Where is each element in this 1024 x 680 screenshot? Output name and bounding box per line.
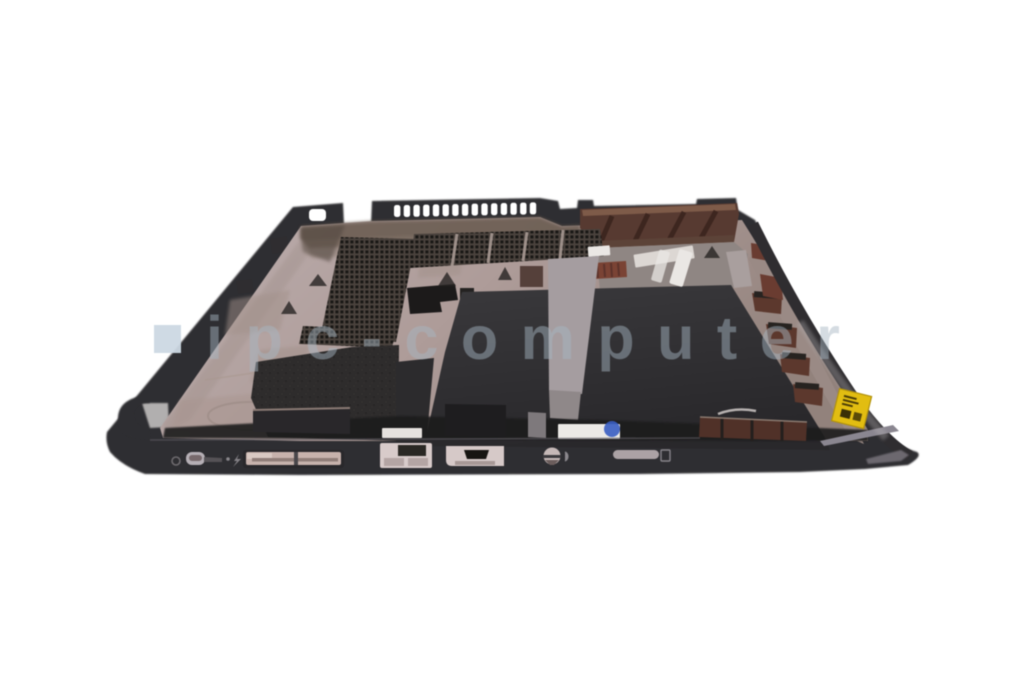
svg-text:ipc-computer: ipc-computer (206, 304, 862, 372)
